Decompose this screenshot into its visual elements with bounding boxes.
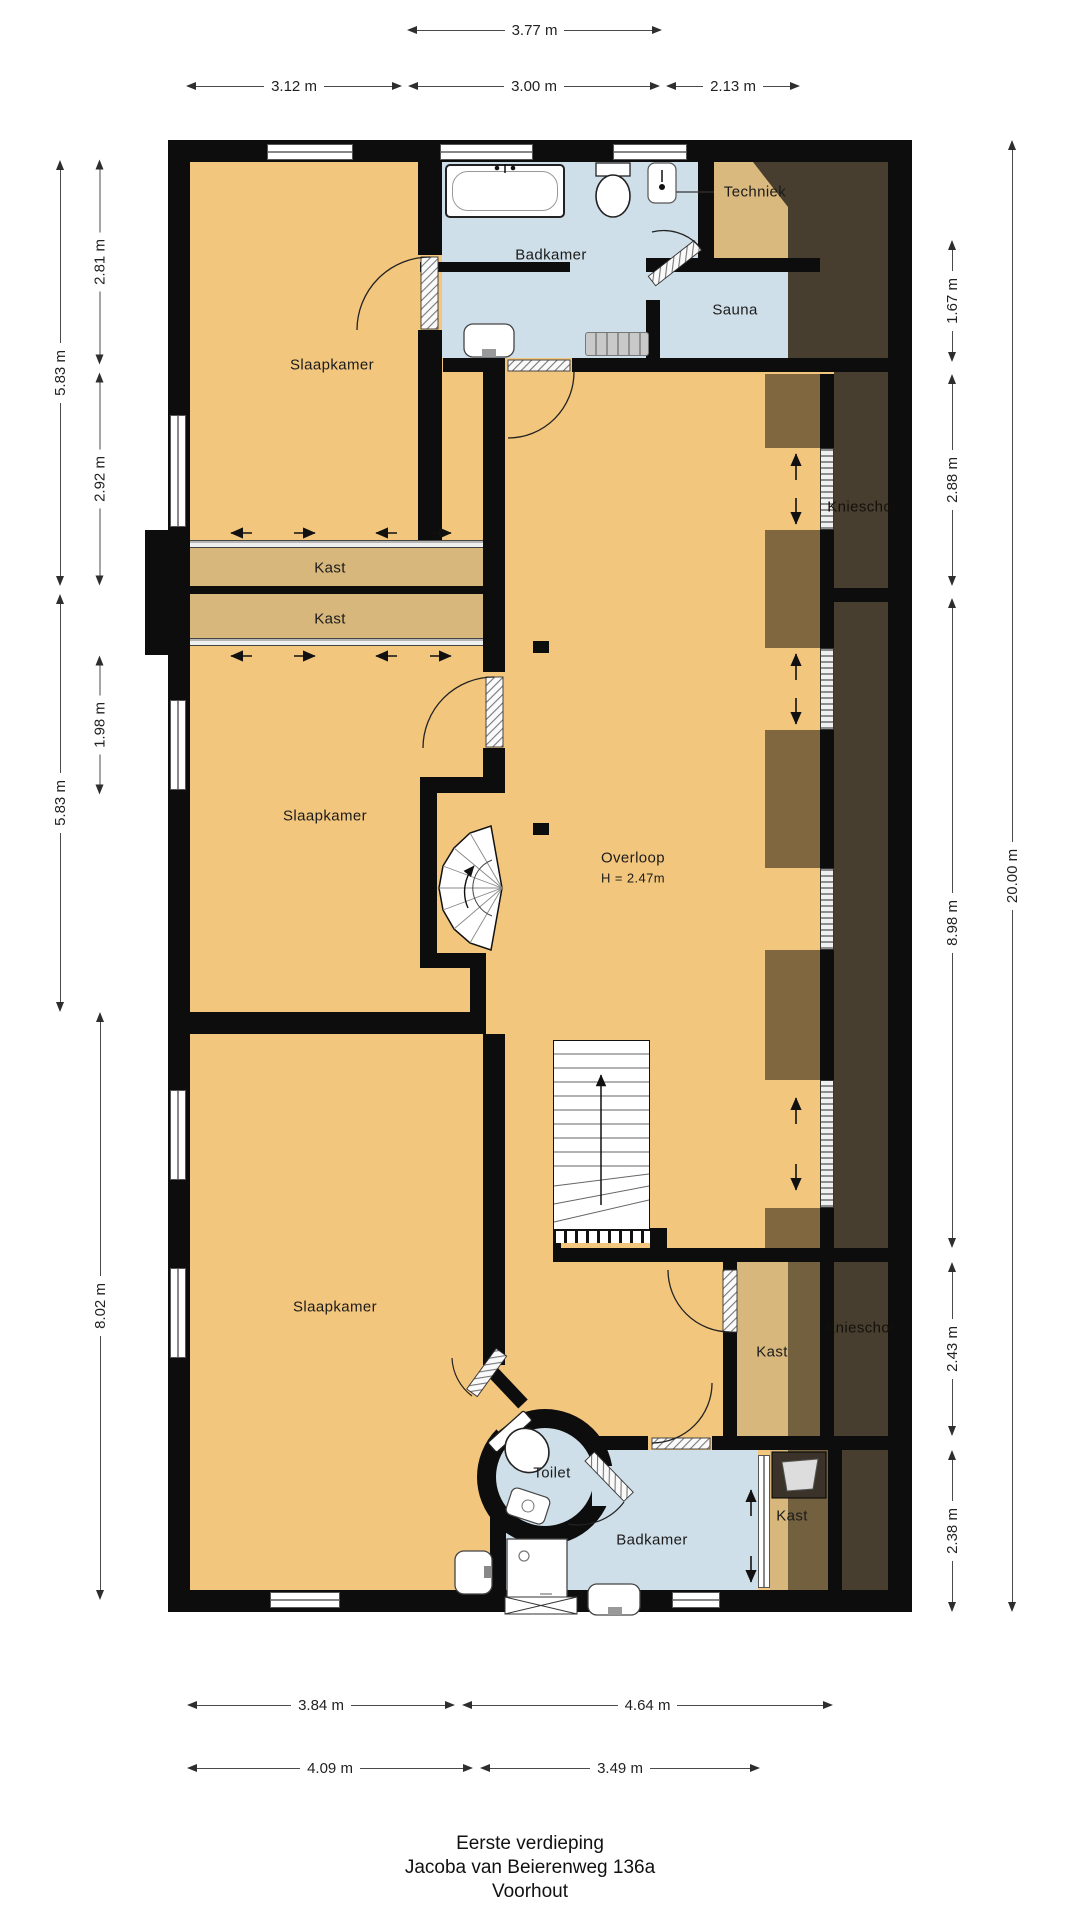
title-floor: Eerste verdieping — [230, 1832, 830, 1856]
window — [170, 415, 186, 527]
wall — [420, 793, 437, 953]
sliding-panel — [820, 448, 834, 530]
sliding-door-rail — [190, 540, 483, 548]
wall — [723, 1248, 737, 1450]
room-label-kast2: Kast — [314, 611, 346, 628]
floorplan-page: { "title": { "line1": "Eerste verdieping… — [0, 0, 1080, 1920]
wall-post — [533, 641, 549, 653]
wall — [712, 1436, 895, 1450]
dimension-right-inner-1: 1.67 m — [942, 240, 962, 362]
wall — [420, 262, 570, 272]
dimension-right-inner-2: 2.88 m — [942, 374, 962, 586]
room-label-overloop-height: H = 2.47m — [601, 871, 665, 886]
room-label-knieschot-bottom: Knieschot — [825, 1320, 894, 1337]
wall — [820, 602, 834, 648]
dimension-bottom-upper-2: 4.64 m — [462, 1695, 833, 1715]
dimension-top-outer: 3.77 m — [407, 20, 662, 40]
window — [170, 1090, 186, 1180]
wall — [418, 162, 442, 255]
room-label-slaapkamer-top: Slaapkamer — [290, 357, 374, 374]
sliding-panel — [820, 868, 834, 950]
room-label-badkamer-bottom: Badkamer — [616, 1532, 688, 1549]
sliding-panel — [820, 648, 834, 730]
room-label-slaapkamer-mid: Slaapkamer — [283, 808, 367, 825]
wall — [820, 374, 834, 448]
wall-outer-left — [168, 140, 190, 1612]
wall — [828, 1450, 842, 1590]
dimension-left-inner-3: 1.98 m — [90, 656, 110, 795]
dimension-right-inner-3: 8.98 m — [942, 598, 962, 1248]
wall — [820, 530, 834, 588]
roof-shade — [765, 950, 820, 1080]
title-address: Jacoba van Beierenweg 136a — [230, 1856, 830, 1880]
wall — [698, 162, 714, 272]
roof-shade — [765, 374, 820, 448]
attic-dark-top-right — [788, 152, 890, 360]
window — [270, 1592, 340, 1608]
dimension-bottom-upper-1: 3.84 m — [187, 1695, 455, 1715]
room-label-badkamer-top: Badkamer — [515, 247, 587, 264]
dimension-top-inner-1: 3.12 m — [186, 76, 402, 96]
wall — [820, 588, 895, 602]
dimension-top-inner-3: 2.13 m — [666, 76, 800, 96]
dimension-left-inner-1: 2.81 m — [90, 160, 110, 365]
window — [267, 144, 353, 160]
radiator-icon — [585, 332, 649, 356]
dimension-right-inner-5: 2.38 m — [942, 1450, 962, 1612]
room-techniek — [714, 162, 788, 258]
room-label-sauna: Sauna — [712, 302, 757, 319]
window — [440, 144, 533, 160]
wall — [820, 950, 834, 1080]
dimension-left-outer-1: 5.83 m — [50, 160, 70, 586]
wall-chimney — [145, 530, 190, 655]
window — [170, 1268, 186, 1358]
window — [672, 1592, 720, 1608]
wall — [572, 358, 895, 372]
wall — [483, 1034, 505, 1365]
wall — [168, 586, 483, 594]
roof-shade — [765, 530, 820, 648]
wall — [483, 372, 505, 672]
bathtub-icon — [445, 164, 565, 218]
dimension-left-inner-2: 2.92 m — [90, 373, 110, 586]
wall — [650, 1228, 667, 1248]
room-label-kast-right-top: Kast — [756, 1344, 788, 1361]
wall — [646, 258, 820, 272]
dimension-right-outer: 20.00 m — [1002, 140, 1022, 1612]
room-label-kast1: Kast — [314, 560, 346, 577]
sliding-door-rail — [190, 638, 483, 646]
room-label-kast-right-bottom: Kast — [776, 1508, 808, 1525]
room-label-toilet: Toilet — [533, 1465, 570, 1482]
room-label-techniek: Techniek — [724, 184, 786, 201]
window — [170, 700, 186, 790]
wall — [168, 1012, 486, 1034]
room-label-overloop: Overloop — [601, 850, 665, 867]
wall — [820, 1262, 834, 1436]
room-label-knieschot-top: Knieschot — [827, 499, 896, 516]
wall — [420, 953, 470, 968]
window — [613, 144, 687, 160]
dimension-left-outer-2: 5.83 m — [50, 594, 70, 1012]
roof-shade — [788, 1262, 820, 1436]
sliding-door — [758, 1455, 770, 1588]
staircase-cut-line — [553, 1230, 650, 1243]
wall — [443, 358, 505, 372]
wall — [420, 777, 505, 793]
title-block: Eerste verdieping Jacoba van Beierenweg … — [230, 1832, 830, 1904]
dimension-right-inner-4: 2.43 m — [942, 1262, 962, 1436]
attic-dark-right-strip — [834, 360, 892, 1590]
wall-post — [533, 823, 549, 835]
sliding-panel — [820, 1080, 834, 1208]
roof-shade — [765, 730, 820, 868]
room-label-slaapkamer-bottom: Slaapkamer — [293, 1299, 377, 1316]
wall — [820, 1208, 834, 1248]
wall — [418, 330, 442, 543]
title-city: Voorhout — [230, 1880, 830, 1904]
staircase — [553, 1040, 650, 1230]
dimension-top-inner-2: 3.00 m — [408, 76, 660, 96]
dimension-bottom-lower-1: 4.09 m — [187, 1758, 473, 1778]
toilet-room-gap — [592, 1466, 615, 1506]
dimension-bottom-lower-2: 3.49 m — [480, 1758, 760, 1778]
dimension-left-inner-4: 8.02 m — [90, 1012, 110, 1600]
wall — [820, 730, 834, 868]
